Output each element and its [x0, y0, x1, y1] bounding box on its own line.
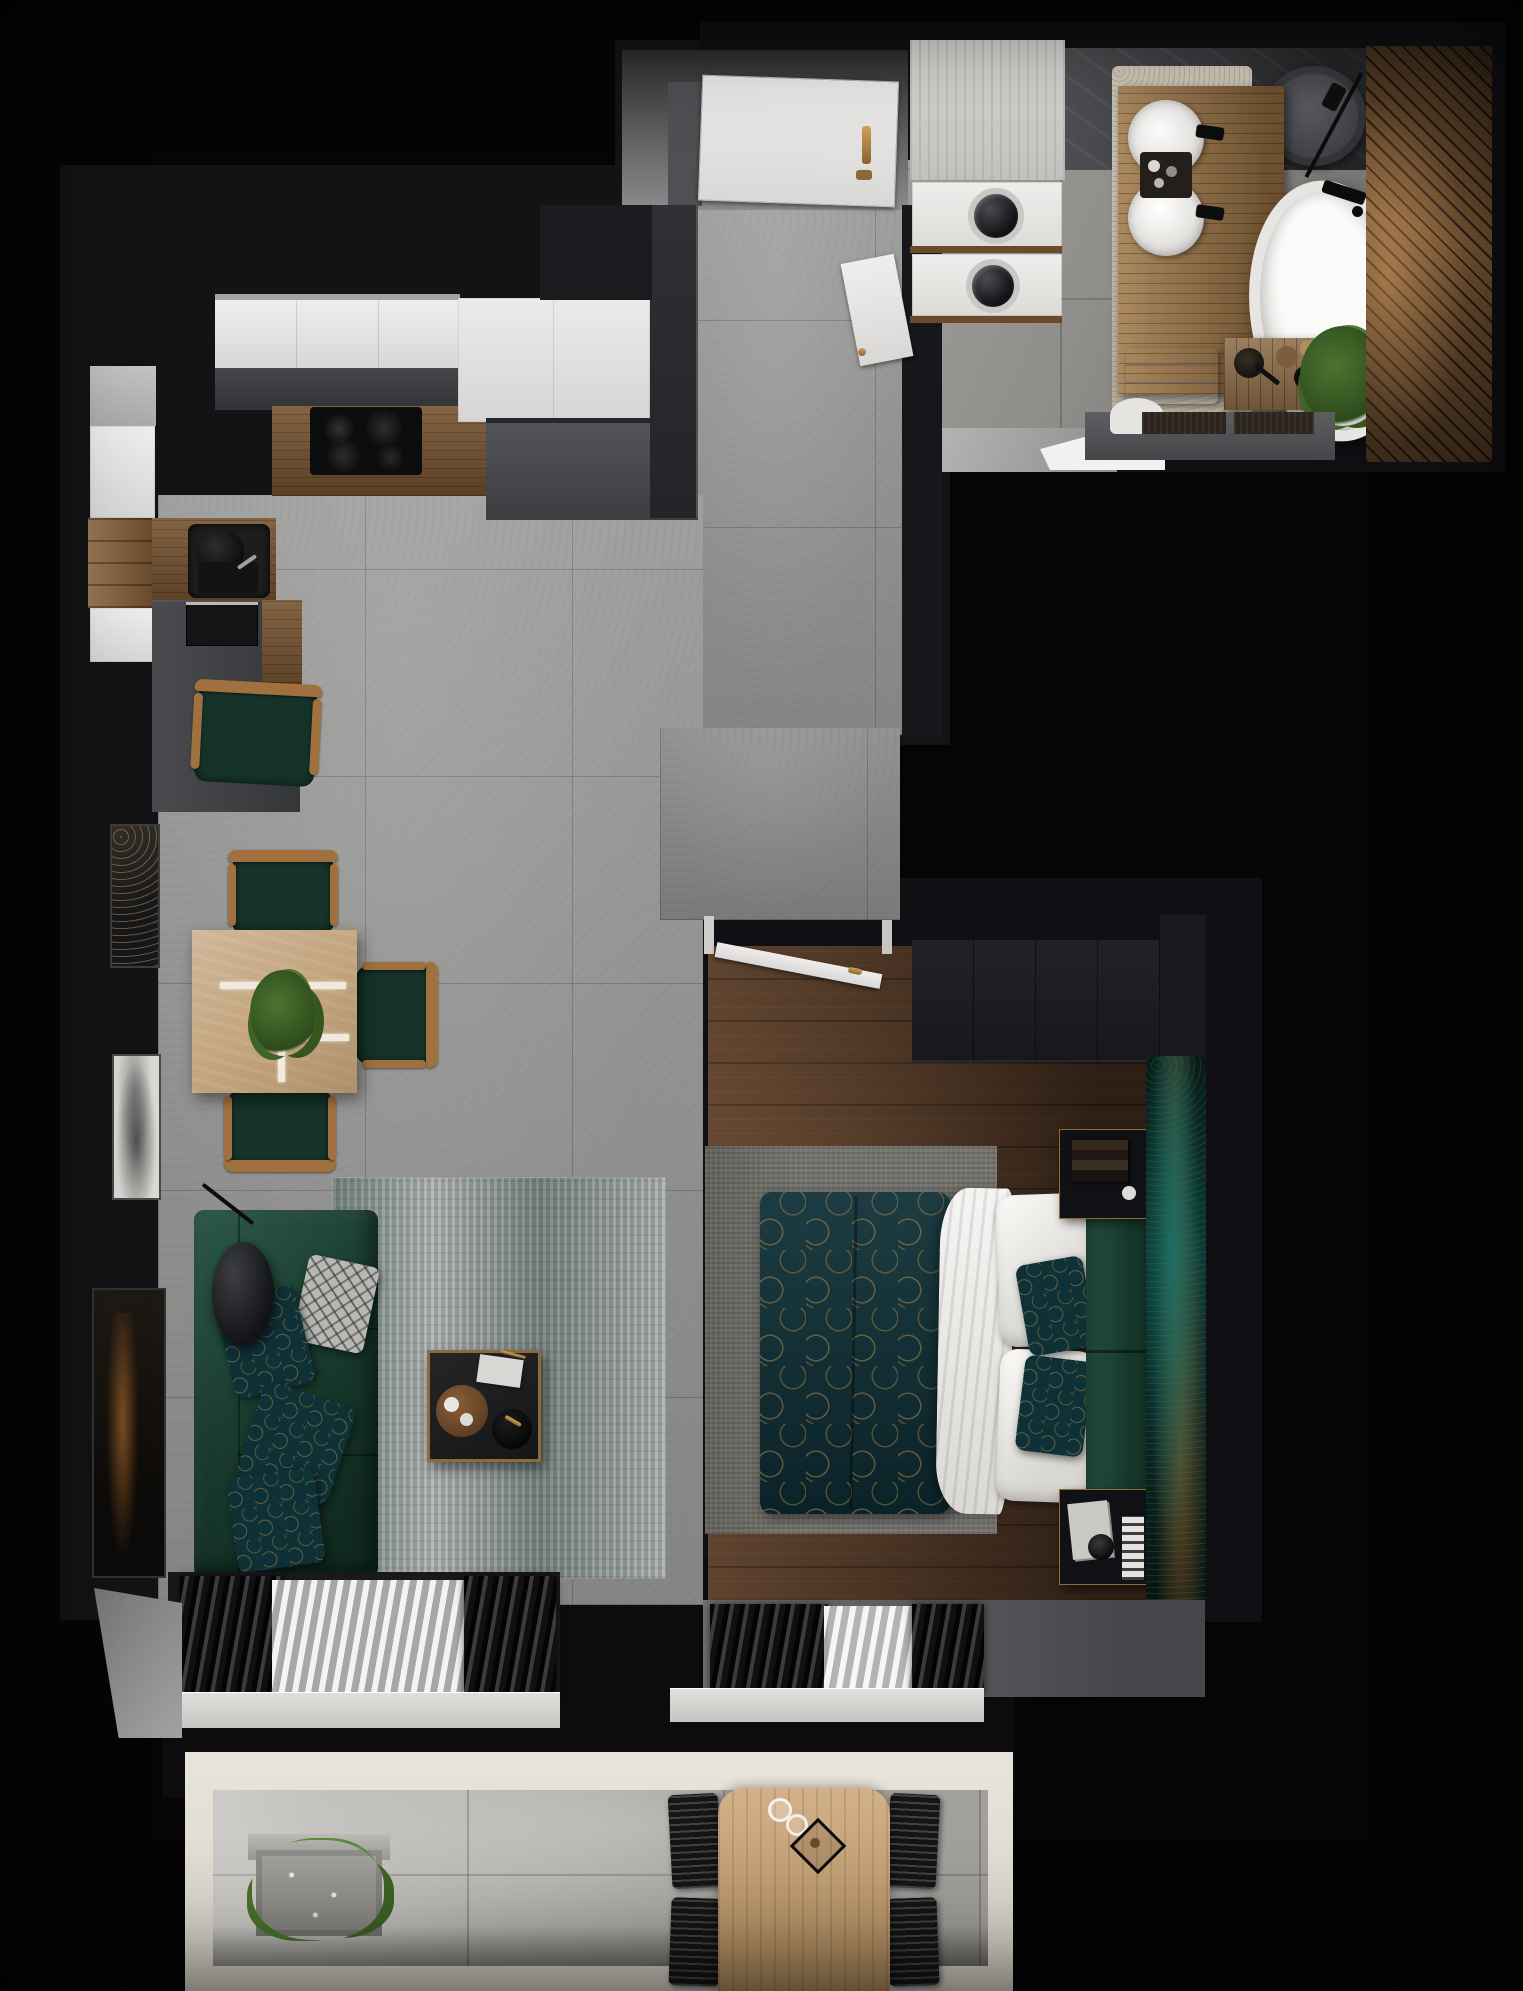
floor-lamp-dome — [212, 1242, 274, 1346]
bedroom-curtain-dark-left — [710, 1604, 828, 1694]
kitchen-sink-basin — [198, 562, 258, 594]
kitchen-wood-return-strip — [262, 600, 302, 692]
washer-column-cabinet — [910, 40, 1065, 180]
wall-art-white-abstract — [114, 1056, 159, 1198]
nightstand-top — [1060, 1130, 1152, 1218]
living-curtain-dark-left — [180, 1576, 284, 1696]
dining-chair-right — [356, 966, 434, 1064]
built-in-oven — [186, 602, 258, 646]
living-curtain-dark-right — [464, 1576, 556, 1696]
washing-machine-lower — [912, 254, 1062, 316]
planter-grasses — [252, 1840, 384, 1940]
chair-arm-top — [362, 962, 426, 970]
art-bronze-glow — [107, 1313, 139, 1553]
washer-shelf-1 — [910, 246, 1062, 253]
coffee-notebook — [476, 1354, 523, 1388]
caddy-bowl-1 — [1276, 346, 1298, 368]
chair-back-bar — [228, 850, 338, 862]
tray-bottle-2 — [1166, 166, 1177, 177]
dining-chair-top — [232, 856, 334, 934]
entry-left-jamb — [668, 82, 702, 206]
kitchen-tall-white-2 — [90, 608, 155, 662]
chair-back-bar — [224, 1160, 336, 1172]
washer-door-glass — [966, 259, 1020, 313]
coffee-tray-black — [492, 1409, 532, 1449]
nightstand-cup — [1122, 1186, 1136, 1200]
entry-door-handle — [862, 126, 871, 164]
coffee-cup-1 — [444, 1397, 459, 1412]
lantern-candle — [810, 1838, 820, 1848]
dining-chair-pulled — [194, 685, 319, 787]
kitchen-wall-fill — [540, 205, 652, 300]
dining-chair-bottom — [228, 1090, 332, 1166]
bathroom-side-door-handle — [858, 348, 866, 356]
living-window-sill — [172, 1692, 560, 1728]
chair-arm-left — [228, 864, 236, 926]
nightstand-books — [1072, 1140, 1128, 1182]
vanity-towels — [1126, 348, 1218, 404]
washing-machine-upper — [912, 182, 1062, 248]
kitchen-tall-cabinet-dark — [650, 205, 698, 518]
bed-headboard-green — [1086, 1182, 1148, 1522]
bedroom-curtain-sheer — [824, 1606, 918, 1698]
coffee-table — [427, 1350, 541, 1462]
tub-faucet-knob — [1352, 206, 1363, 217]
bedroom-wardrobe — [912, 940, 1162, 1062]
kitchen-backsplash-band — [215, 368, 462, 410]
vanity-accessory-tray — [1140, 152, 1192, 198]
washer-door-glass — [968, 188, 1024, 244]
tray-bottle-3 — [1154, 178, 1164, 188]
outdoor-chair-4 — [886, 1897, 939, 1987]
bedroom-door-jamb-left — [704, 916, 714, 954]
floorplan-render — [0, 0, 1523, 1991]
bedroom-approach-floor — [660, 728, 900, 920]
chair-arm-left — [224, 1096, 232, 1160]
living-curtain-sheer — [272, 1580, 478, 1702]
nightstand-camera — [1088, 1534, 1114, 1560]
wall-art-bronze-large — [94, 1290, 164, 1576]
kitchen-left-corner-counter — [90, 366, 156, 426]
coffee-cup-2 — [460, 1413, 473, 1426]
chair-arm-bottom — [362, 1060, 426, 1068]
magazine-rack-white — [1122, 1516, 1144, 1580]
bed-pillow-teal-2 — [1014, 1354, 1093, 1458]
caddy-brush — [1234, 348, 1264, 378]
outdoor-chair-1 — [668, 1793, 723, 1889]
headboard-seam — [1086, 1350, 1148, 1353]
wood-slat-accent-wall — [1366, 46, 1492, 462]
living-window-return-wall — [94, 1588, 182, 1738]
induction-cooktop — [310, 407, 422, 475]
bedroom-accent-wall-teal — [1146, 1056, 1206, 1608]
bedroom-door-jamb-right — [882, 920, 892, 954]
kitchen-wood-cabinet — [88, 518, 154, 608]
outdoor-chair-3 — [886, 1793, 941, 1889]
kitchen-tall-white-1 — [90, 426, 155, 518]
kitchen-upper-cabinets — [215, 300, 460, 368]
chair-arm-right — [330, 864, 338, 926]
accent-wall-upper-dark — [1160, 915, 1206, 1057]
outdoor-chair-2 — [668, 1897, 721, 1987]
bedroom-window-sill — [670, 1688, 984, 1722]
sofa-pillow-teal-3 — [226, 1466, 327, 1573]
bath-mat-dark-2 — [1234, 412, 1314, 434]
coffee-tray-wood — [436, 1385, 488, 1437]
wall-art-gold-speckle — [112, 826, 158, 966]
outdoor-table — [718, 1788, 890, 1991]
entry-door-lock-plate — [856, 170, 872, 180]
chair-arm-right — [328, 1096, 336, 1160]
table-centerpiece-plant — [250, 970, 316, 1056]
bedroom-curtain-dark-right — [912, 1604, 984, 1694]
bath-mat-dark-1 — [1142, 412, 1226, 434]
kitchen-counter-white-run — [458, 298, 652, 422]
chair-back-bar — [426, 962, 438, 1068]
washer-shelf-2 — [910, 316, 1062, 323]
tray-bottle-1 — [1148, 160, 1160, 172]
